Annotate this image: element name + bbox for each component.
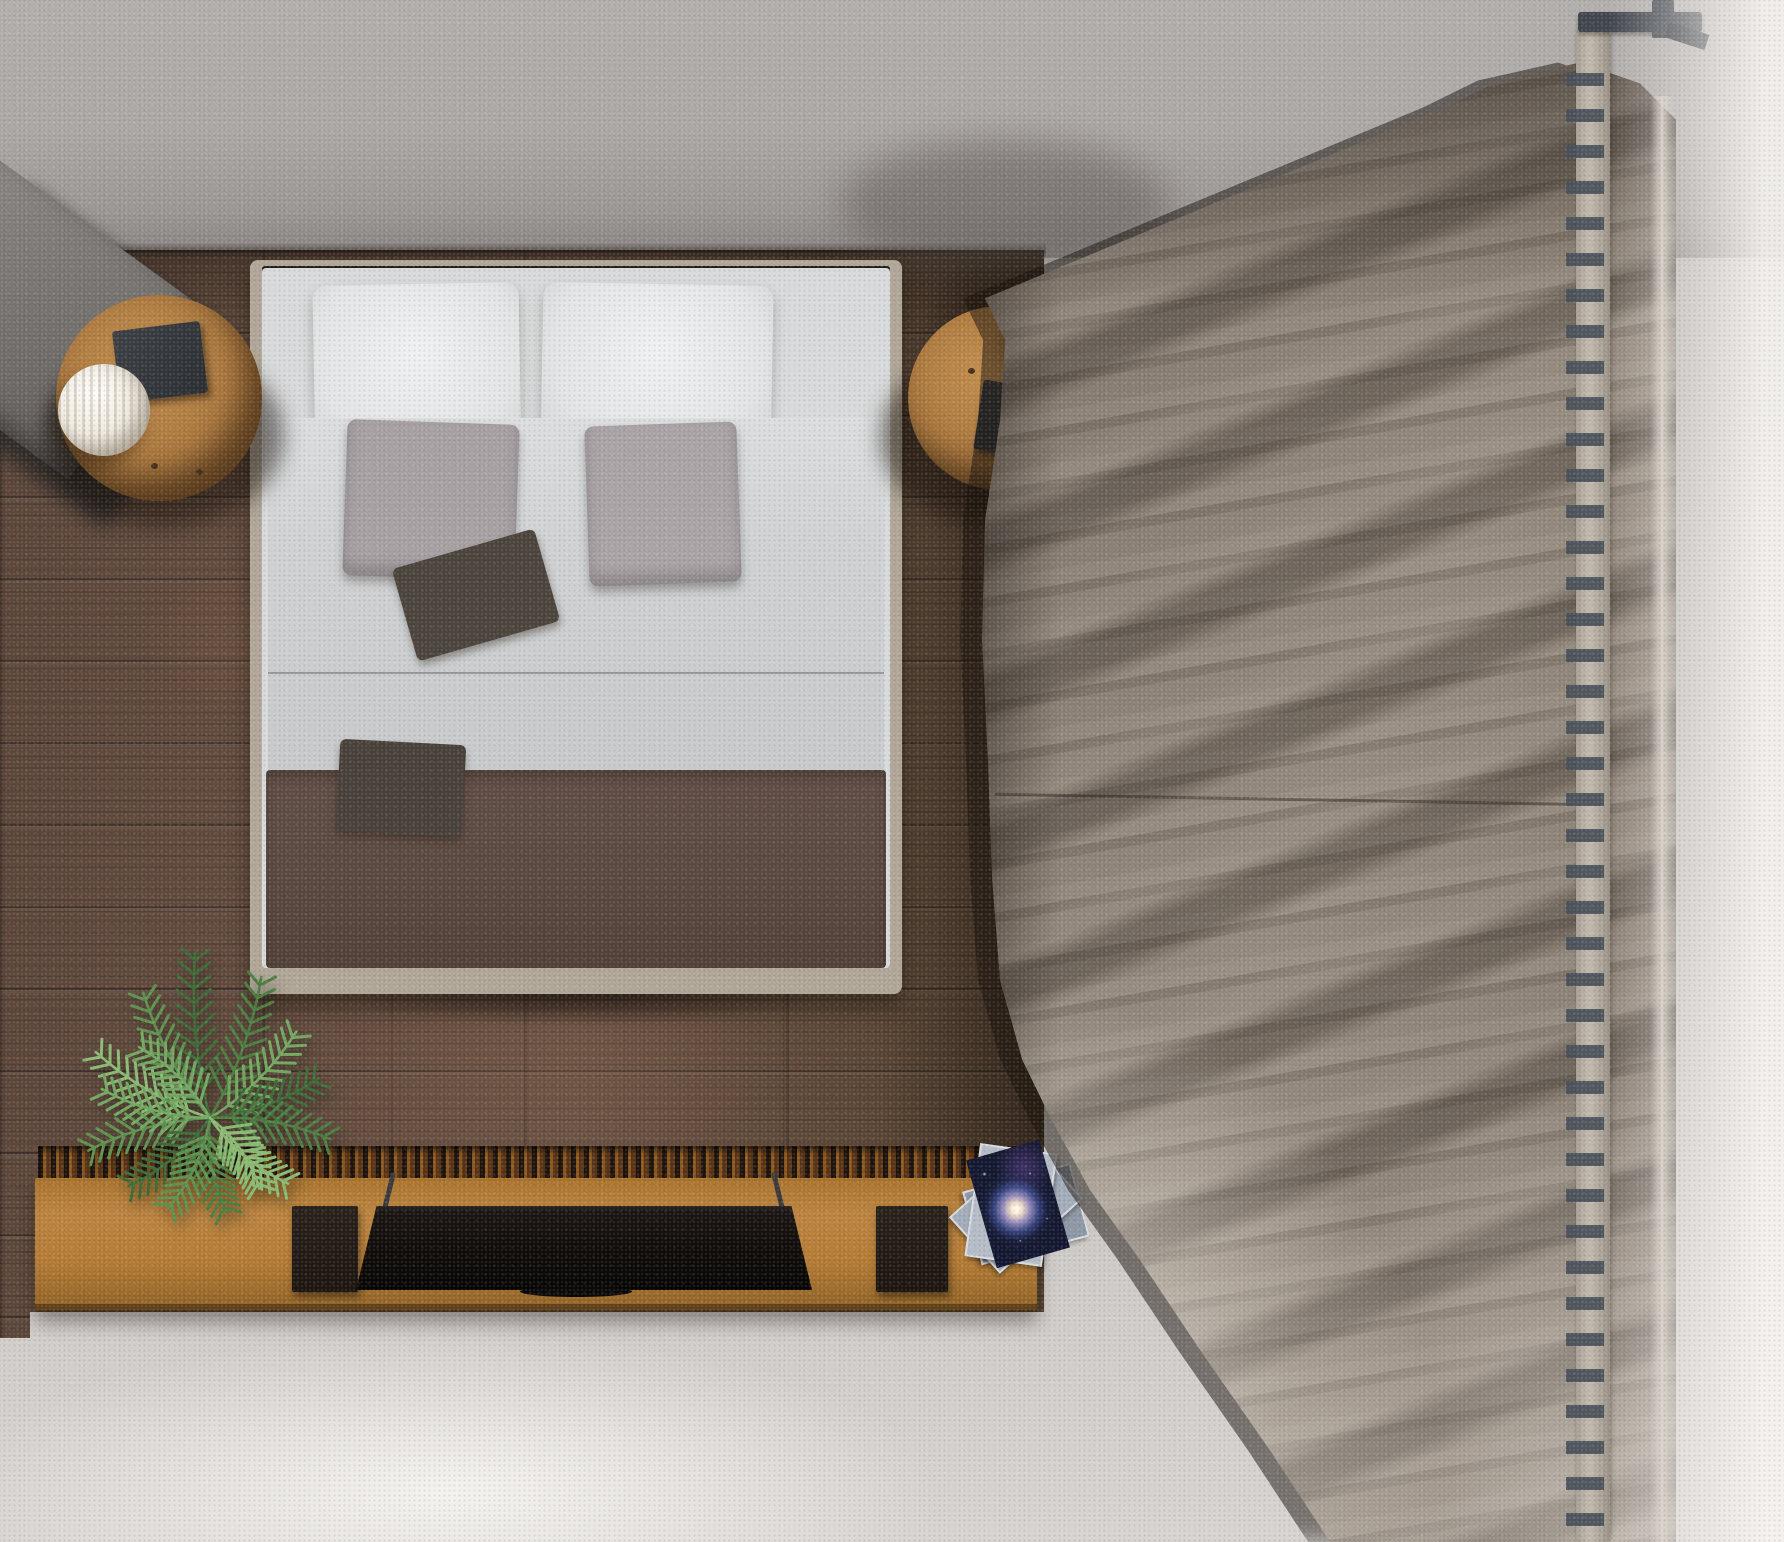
curtain-rings <box>1566 50 1604 1530</box>
wood-knot <box>151 463 158 469</box>
duvet-fold-line <box>268 672 884 674</box>
right-light-vignette <box>1610 0 1784 1542</box>
cushion-right <box>584 421 741 586</box>
bedroom-topdown-render <box>0 0 1784 1542</box>
wood-knot <box>968 368 975 374</box>
speaker-right <box>876 1206 948 1292</box>
bed <box>250 260 902 994</box>
wood-knot <box>196 469 203 475</box>
potted-palm-plant <box>15 928 395 1258</box>
accent-pillow-lower <box>336 739 467 837</box>
tv-panel <box>356 1206 812 1290</box>
console-front-edge <box>35 1304 1037 1312</box>
tv-stand-base <box>520 1286 632 1297</box>
nightstand-left-lamp <box>58 364 150 456</box>
floor-light-wash <box>0 1290 1180 1542</box>
